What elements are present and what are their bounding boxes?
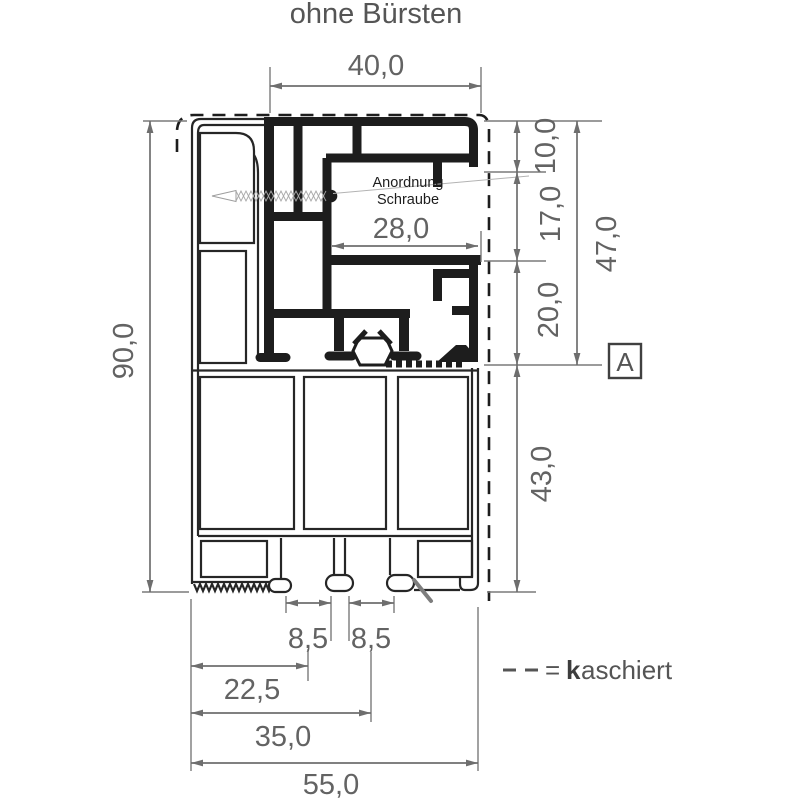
dimension-bottom-stack: 8,5 8,5 22,5 35,0 55,0 [191, 596, 478, 800]
dim-label-bottom1: 22,5 [224, 674, 280, 706]
dim-label-slot1: 8,5 [288, 623, 328, 655]
main-profile-thick-part [260, 121, 481, 365]
dim-label-bottom2: 35,0 [255, 721, 311, 753]
dim-label-left-height: 90,0 [108, 323, 140, 379]
legend-bold-prefix: k [566, 655, 581, 685]
dimension-inner-width: 28,0 [332, 213, 481, 262]
clamp-wedge [437, 345, 474, 362]
technical-drawing: ohne Bürsten [0, 0, 800, 800]
dim-label-right-seg2: 17,0 [535, 186, 567, 242]
annotation-line2: Schraube [377, 192, 439, 208]
section-marker-label: A [616, 347, 634, 377]
dim-label-inner-width: 28,0 [373, 213, 429, 245]
profile-cross-section-svg: ohne Bürsten [0, 0, 800, 800]
dim-label-slot2: 8,5 [351, 623, 391, 655]
cover-profile-thin-part [192, 119, 264, 584]
dim-label-right-seg3: 20,0 [533, 282, 565, 338]
legend-kaschiert: = k aschiert [503, 655, 673, 685]
dim-label-right-seg1: 10,0 [530, 118, 562, 174]
section-marker: A [609, 344, 641, 378]
screw-position-dot [325, 190, 338, 203]
dimension-right-stack: 10,0 17,0 20,0 43,0 47,0 [484, 118, 623, 592]
dimension-left-height: 90,0 [108, 121, 189, 592]
annotation-line1: Anordnung [373, 175, 444, 191]
dim-label-bottom-total: 55,0 [303, 769, 359, 800]
serrated-bottom-edge [194, 584, 272, 591]
legend-suffix: aschiert [581, 655, 673, 685]
dim-label-right-subtotal: 47,0 [591, 216, 623, 272]
dim-label-right-seg4: 43,0 [526, 446, 558, 502]
legend-equals: = [545, 655, 560, 685]
drawing-title: ohne Bürsten [290, 0, 463, 30]
dim-label-top-width: 40,0 [348, 50, 404, 82]
lower-profile-thin-part [192, 368, 478, 601]
dimension-top-width: 40,0 [270, 50, 481, 113]
screw-graphic [212, 176, 529, 202]
